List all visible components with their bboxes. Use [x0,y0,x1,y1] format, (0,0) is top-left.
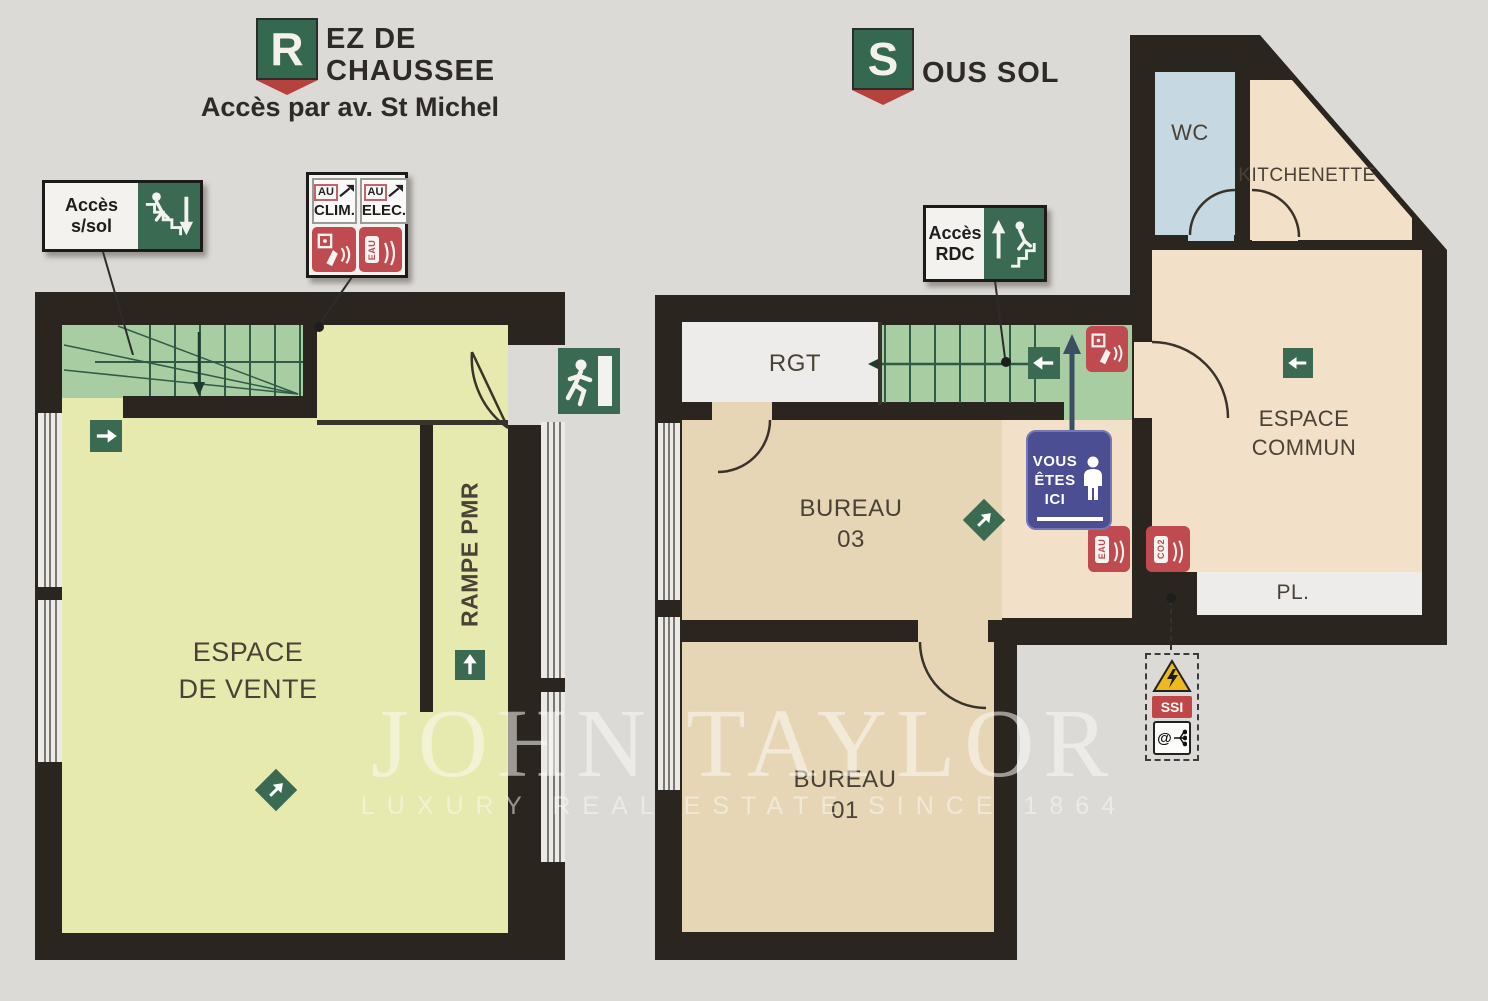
ground-floor-logo: R [256,18,318,95]
acces-sous-sol-label: Accès s/sol [45,183,138,249]
room-label-wc: WC [1160,120,1220,146]
watermark-tagline: LUXURY REAL ESTATE SINCE 1864 [0,792,1488,821]
arrow-right-icon [90,420,122,452]
fire-extinguisher-icon: EAU [1088,526,1130,572]
badge-underline [1037,517,1103,521]
person-icon [1081,456,1105,504]
logo-chevron [852,90,914,105]
stairs-up-icon [984,208,1044,279]
room-label-espace-commun: ESPACE COMMUN [1224,404,1384,462]
fire-alarm-push-button-icon [1086,326,1128,372]
shutoff-sign: AU CLIM. AU ELEC. [306,172,408,278]
exit-running-man-icon [558,348,620,414]
au-clim-cell: AU CLIM. [312,178,357,224]
acces-rdc-label: Accès RDC [926,208,984,279]
arrow-left-icon [1283,348,1313,378]
fire-extinguisher-icon: CO2 [1146,526,1190,572]
room-label-pl: PL. [1263,581,1323,605]
you-are-here-label: VOUS ÊTES ICI [1033,452,1078,509]
stairs-down-icon [138,183,200,249]
shutoff-arrow-icon [339,184,355,198]
arrow-up-icon [455,650,485,680]
au-tag: AU [364,184,388,201]
logo-letter-s: S [852,28,914,90]
elec-label: ELEC. [362,202,406,219]
clim-label: CLIM. [314,202,355,219]
fire-alarm-push-button-icon [312,227,356,272]
you-are-here-badge: VOUS ÊTES ICI [1026,430,1112,530]
basement-logo: S [852,28,914,105]
acces-rdc-sign: Accès RDC [923,205,1047,282]
logo-chevron [256,80,318,95]
floor-plan-page: R EZ DE CHAUSSEE Accès par av. St Michel… [0,0,1488,1001]
shutoff-arrow-icon [388,184,404,198]
room-label-kitchenette: KITCHENETTE [1227,165,1387,187]
room-label-bureau-03: BUREAU 03 [771,493,931,555]
arrow-left-icon [1028,347,1060,379]
au-elec-cell: AU ELEC. [360,178,408,224]
logo-letter-r: R [256,18,318,80]
fire-extinguisher-icon: EAU [359,227,403,272]
room-label-rampe-pmr: RAMPE PMR [457,475,484,635]
room-label-rgt: RGT [745,350,845,378]
floor-plan-drawing [0,0,1488,1001]
watermark-brand: JOHN TAYLOR [0,688,1488,799]
au-tag: AU [314,184,338,201]
acces-sous-sol-sign: Accès s/sol [42,180,203,252]
